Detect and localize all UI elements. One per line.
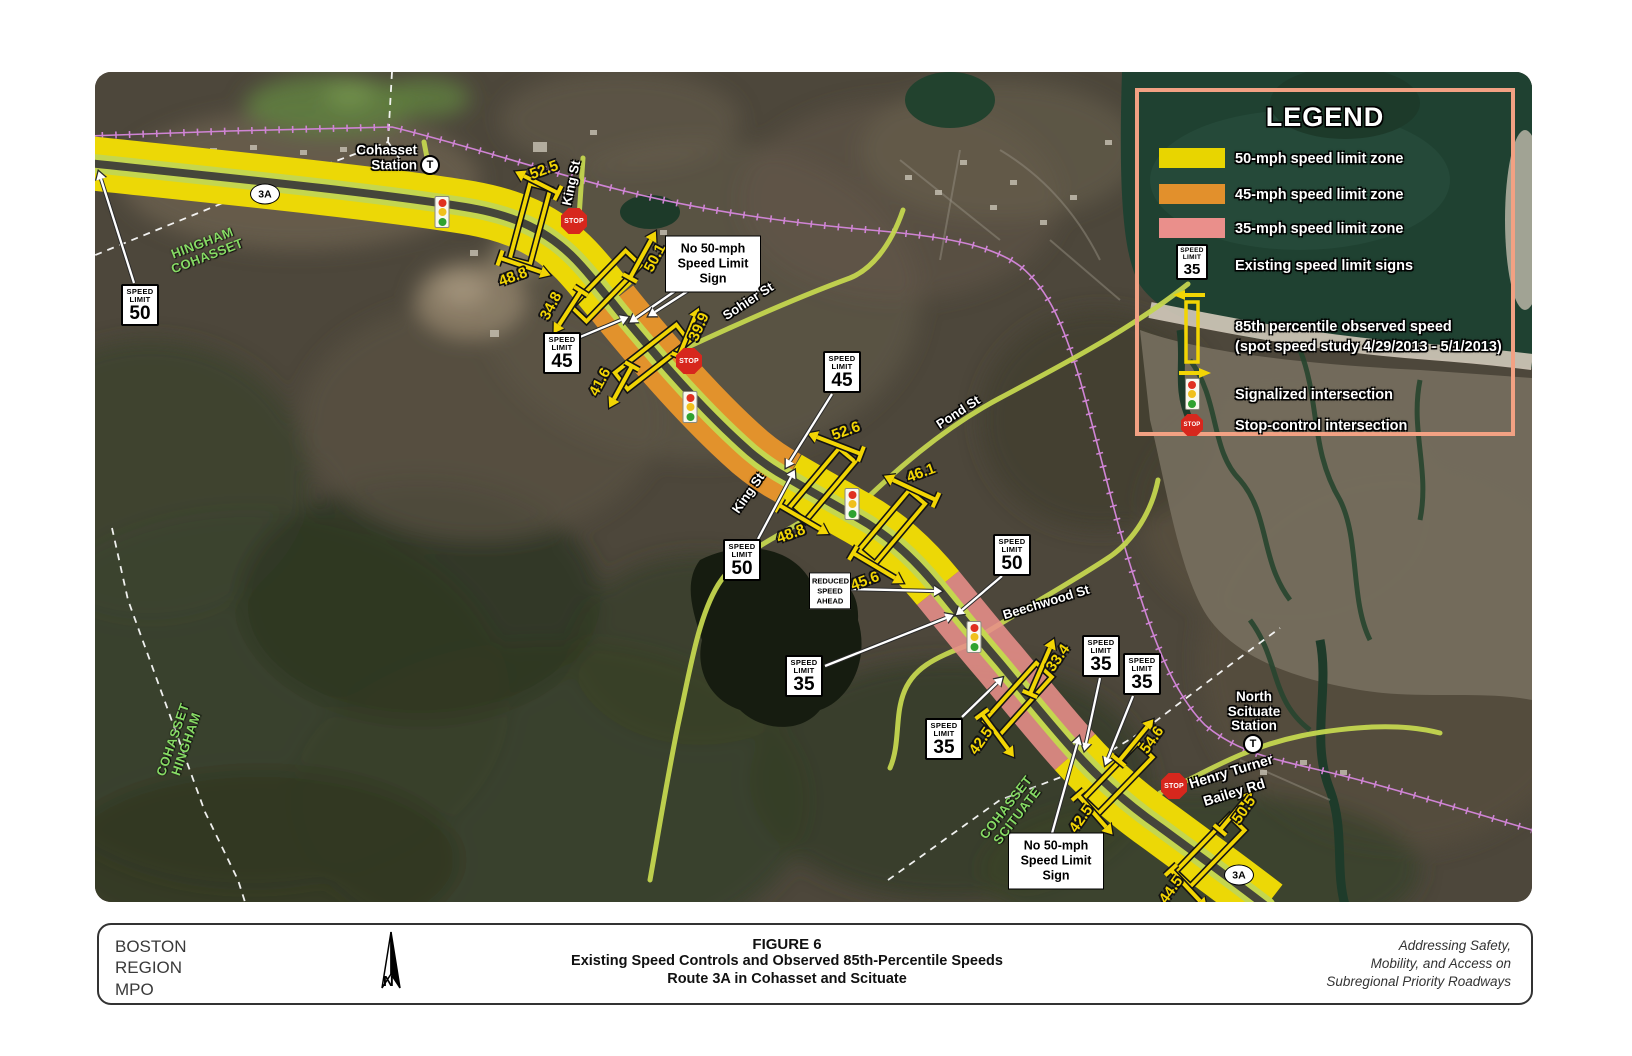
figure-title-bar: BOSTON REGION MPO N FIGURE 6 Existing Sp…	[97, 923, 1533, 1005]
callout-box: No 50-mphSpeed LimitSign	[665, 236, 761, 293]
traffic-signal-icon	[1157, 378, 1227, 410]
speed-limit-sign: SPEEDLIMIT35	[1123, 653, 1161, 695]
speed-value-label: 33.4	[1043, 641, 1074, 675]
t-station-icon: T	[420, 155, 440, 175]
traffic-signal-icon	[683, 391, 698, 423]
t-station-icon: T	[1243, 734, 1263, 754]
route-shield: 3A	[250, 184, 280, 205]
speed-value-label: 54.6	[1137, 723, 1168, 757]
speed-limit-sign: SPEEDLIMIT50	[723, 539, 761, 581]
legend-50mph-swatch	[1157, 148, 1227, 168]
stop-sign: STOP	[1161, 773, 1187, 799]
street-label: King St	[729, 470, 767, 516]
street-label: Beechwood St	[1001, 582, 1091, 623]
station-label: CohassetStation	[356, 143, 417, 172]
legend-45mph-swatch	[1157, 184, 1227, 204]
speed-value-label: 44.5	[1156, 873, 1187, 902]
legend-title: LEGEND	[1139, 102, 1511, 133]
legend-85th-label: 85th percentile observed speed (spot spe…	[1235, 318, 1502, 357]
speed-value-label: 39.9	[685, 310, 712, 344]
speed-value-label: 45.6	[848, 568, 881, 594]
legend-panel: LEGEND 50-mph speed limit zone 45-mph sp…	[1135, 88, 1515, 436]
speed-value-label: 41.6	[586, 365, 615, 399]
stop-sign: STOP	[676, 348, 702, 374]
callout-box: REDUCEDSPEEDAHEAD	[809, 572, 851, 609]
street-label: King St	[559, 159, 583, 207]
speed-limit-sign: SPEEDLIMIT35	[1082, 635, 1120, 677]
route-shield: 3A	[1224, 865, 1254, 886]
figure-title: FIGURE 6 Existing Speed Controls and Obs…	[467, 936, 1107, 988]
town-boundary-label: HINGHAMCOHASSET	[164, 223, 245, 277]
speed-value-label: 42.5	[966, 724, 997, 758]
speed-value-label: 34.8	[537, 289, 566, 323]
map-canvas: 52.548.850.134.839.941.652.648.846.145.6…	[95, 72, 1532, 902]
speed-limit-sign-icon: SPEED LIMIT 35	[1157, 244, 1227, 280]
station-label: NorthScituateStation	[1228, 690, 1281, 734]
speed-limit-sign: SPEEDLIMIT45	[823, 351, 861, 393]
speed-limit-sign: SPEEDLIMIT35	[925, 718, 963, 760]
traffic-signal-icon	[845, 488, 860, 520]
speed-value-label: 42.5	[1066, 802, 1097, 836]
speed-limit-sign: SPEEDLIMIT35	[785, 655, 823, 697]
speed-value-label: 52.6	[829, 418, 862, 444]
traffic-signal-icon	[967, 621, 982, 653]
program-tagline: Addressing Safety, Mobility, and Access …	[1326, 937, 1511, 990]
town-boundary-label: COHASSETHINGHAM	[154, 701, 206, 782]
figure-page: 52.548.850.134.839.941.652.648.846.145.6…	[0, 0, 1632, 1056]
traffic-signal-icon	[435, 196, 450, 228]
stop-sign: STOP	[561, 208, 587, 234]
north-label: N	[383, 973, 394, 990]
speed-limit-sign: SPEEDLIMIT45	[543, 332, 581, 374]
observed-speed-icon	[1157, 288, 1227, 380]
speed-value-label: 48.8	[496, 264, 529, 290]
legend-35mph-swatch	[1157, 218, 1227, 238]
agency-name: BOSTON REGION MPO	[115, 936, 186, 1000]
speed-limit-sign: SPEEDLIMIT50	[121, 284, 159, 326]
speed-limit-sign: SPEEDLIMIT50	[993, 534, 1031, 576]
street-label: Pond St	[933, 392, 982, 431]
stop-sign-icon: STOP	[1157, 414, 1227, 436]
callout-box: No 50-mphSpeed LimitSign	[1008, 833, 1104, 890]
speed-value-label: 48.8	[774, 521, 807, 547]
speed-value-label: 46.1	[904, 460, 937, 486]
figure-number: FIGURE 6	[467, 936, 1107, 953]
speed-value-label: 52.5	[527, 157, 560, 183]
